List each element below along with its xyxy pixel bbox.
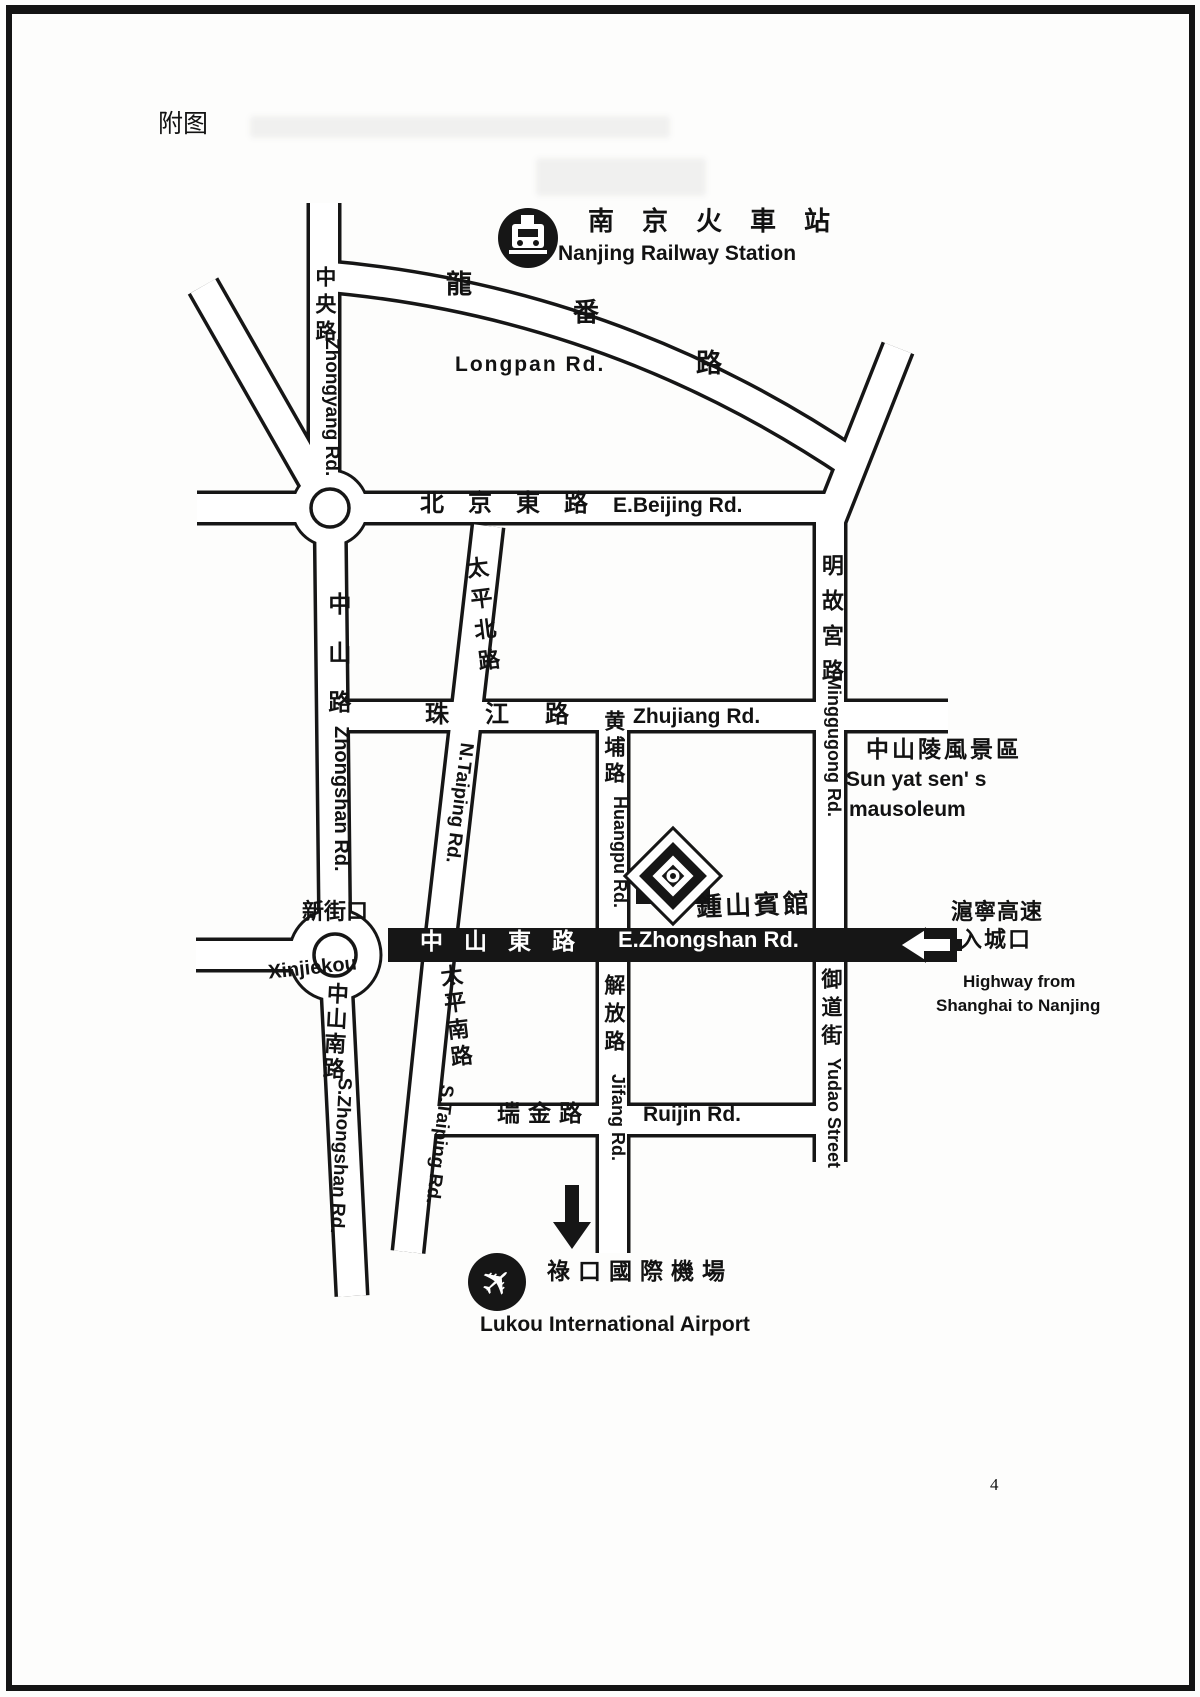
road-label-zhongshan-east-en: E.Zhongshan Rd. [618, 929, 799, 952]
road-label-jifang-en: Jifang Rd. [608, 1074, 627, 1161]
mausoleum-label-en-2: mausoleum [849, 799, 966, 821]
station-label-zh: 南京火車站 [588, 208, 858, 235]
road-label-yudao-zh: 御道街 [819, 968, 841, 1052]
road-label-zhujiang-en: Zhujiang Rd. [633, 706, 760, 728]
road-label-zhongshan-south-zh: 中山南路 [319, 981, 347, 1082]
road-label-minggugong-zh: 明故宮路 [819, 554, 842, 694]
xinjiekou-label-zh: 新街口 [302, 901, 368, 924]
airport-label-en: Lukou International Airport [480, 1314, 750, 1336]
mausoleum-label-en-1: Sun yat sen' s [846, 769, 986, 791]
road-label-huangpu-en: Huangpu Rd. [610, 796, 629, 908]
road-label-zhongshan-zh: 中山路 [325, 592, 349, 739]
down-arrow-icon [553, 1185, 591, 1249]
road-label-zhujiang-zh: 珠江路 [425, 703, 605, 728]
road-label-longpan-zh-2: 番 [573, 299, 599, 326]
page-caption: 附图 [158, 112, 208, 138]
road-label-longpan-zh-1: 龍 [446, 271, 472, 298]
road-label-ruijin-en: Ruijin Rd. [643, 1104, 741, 1126]
road-label-minggugong-en: Minggugong Rd. [824, 675, 843, 817]
highway-label-zh-1: 滬寧高速 [951, 901, 1043, 924]
page-number: 4 [990, 1476, 999, 1494]
road-label-jifang-zh: 解放路 [602, 974, 624, 1058]
highway-label-en-1: Highway from [963, 973, 1075, 991]
road-label-longpan-zh-3: 路 [696, 350, 722, 377]
scanned-map-page: ✈ 附图 南京火車站 Nanjing Railway Station 龍 番 路… [0, 0, 1200, 1697]
road-label-zhongshan-en: Zhongshan Rd. [330, 726, 351, 872]
road-label-beijing-east-zh: 北京東路 [420, 492, 612, 517]
road-label-longpan-en: Longpan Rd. [455, 354, 605, 376]
highway-label-en-2: Shanghai to Nanjing [936, 997, 1100, 1015]
highway-label-zh-2: 入城口 [960, 929, 1032, 952]
road-label-yudao-en: Yudao Street [824, 1058, 843, 1168]
station-label-en: Nanjing Railway Station [558, 243, 796, 265]
airplane-icon: ✈ [468, 1253, 526, 1311]
airport-label-zh: 祿口國際機場 [547, 1260, 733, 1284]
mausoleum-label-zh: 中山陵風景區 [866, 738, 1022, 762]
road-label-ruijin-zh: 瑞金路 [497, 1102, 590, 1126]
roundabout-north-island [311, 489, 349, 527]
road-label-beijing-east-en: E.Beijing Rd. [613, 495, 743, 517]
road-label-huangpu-zh: 黄埔路 [602, 710, 624, 788]
train-icon [498, 208, 558, 268]
hotel-label-zh: 鍾山賓館 [696, 890, 813, 921]
road-label-zhongyang-zh: 中央路 [313, 266, 335, 347]
road-label-zhongyang-en: Zhongyang Rd. [321, 338, 341, 476]
road-label-zhongshan-east-zh: 中山東路 [420, 930, 596, 954]
